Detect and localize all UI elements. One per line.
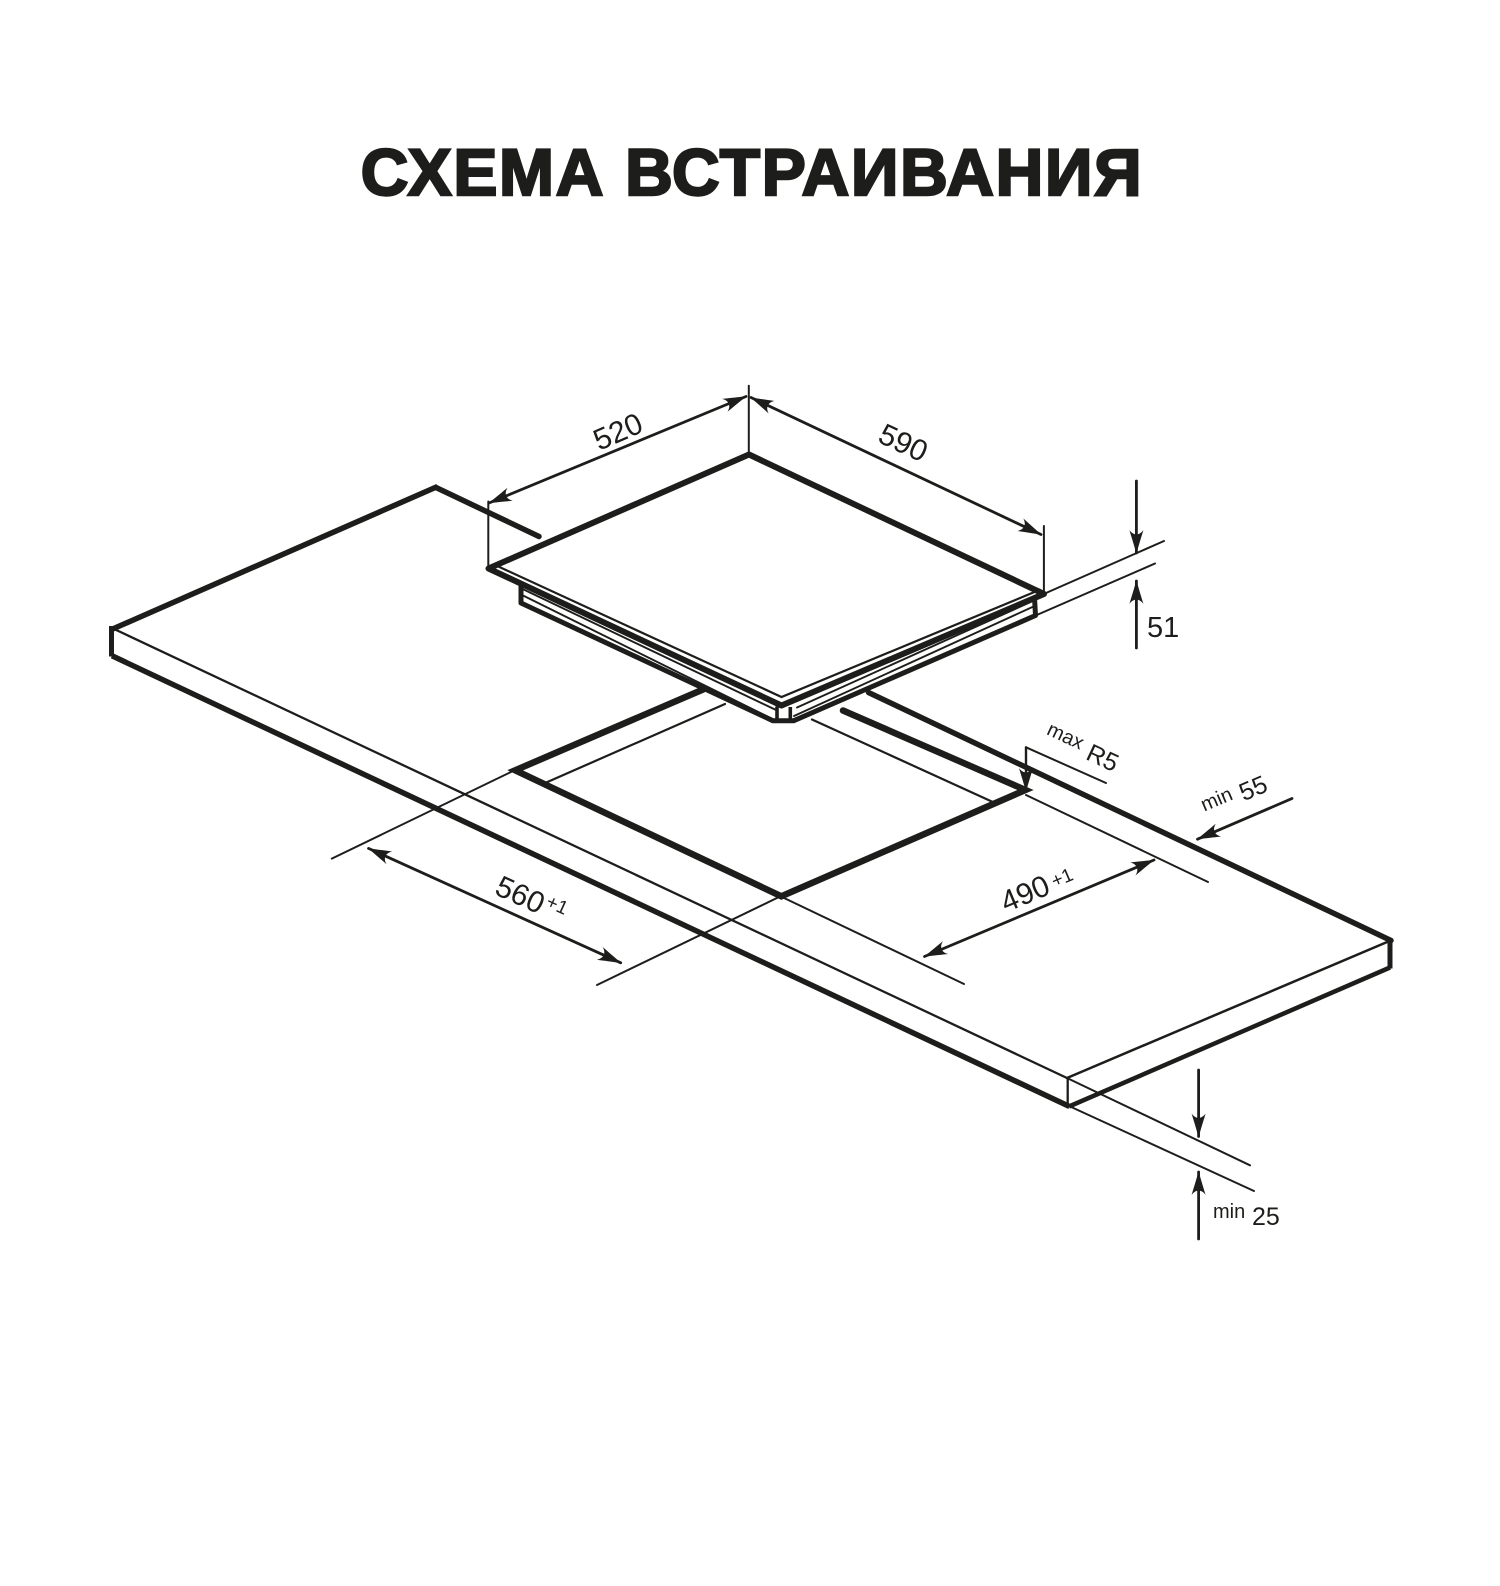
svg-text:51: 51 bbox=[1147, 612, 1179, 644]
svg-text:R5: R5 bbox=[1082, 739, 1123, 778]
svg-text:+1: +1 bbox=[1048, 865, 1076, 893]
svg-text:25: 25 bbox=[1252, 1203, 1280, 1231]
svg-text:min: min bbox=[1198, 783, 1236, 816]
svg-text:490: 490 bbox=[996, 869, 1055, 919]
svg-text:590: 590 bbox=[873, 418, 932, 469]
svg-text:520: 520 bbox=[589, 407, 648, 457]
svg-text:55: 55 bbox=[1235, 770, 1272, 807]
svg-text:СХЕМА ВСТРАИВАНИЯ: СХЕМА ВСТРАИВАНИЯ bbox=[361, 135, 1143, 209]
svg-text:min: min bbox=[1213, 1201, 1245, 1223]
svg-text:max: max bbox=[1044, 718, 1088, 754]
svg-text:560: 560 bbox=[490, 870, 549, 921]
